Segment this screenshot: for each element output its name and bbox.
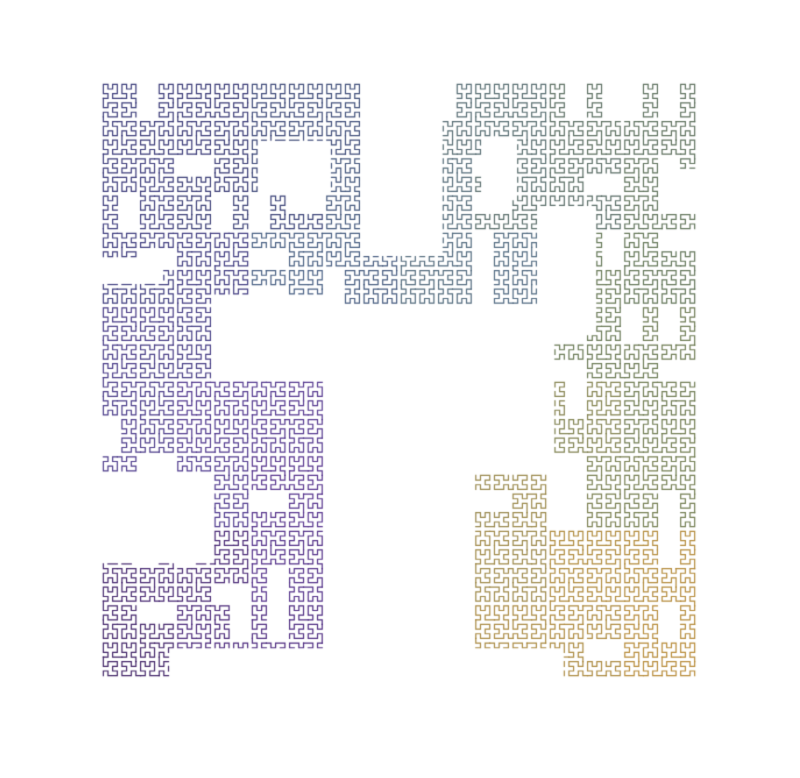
page xyxy=(0,0,800,778)
hilbert-fractal-canvas xyxy=(0,0,800,778)
